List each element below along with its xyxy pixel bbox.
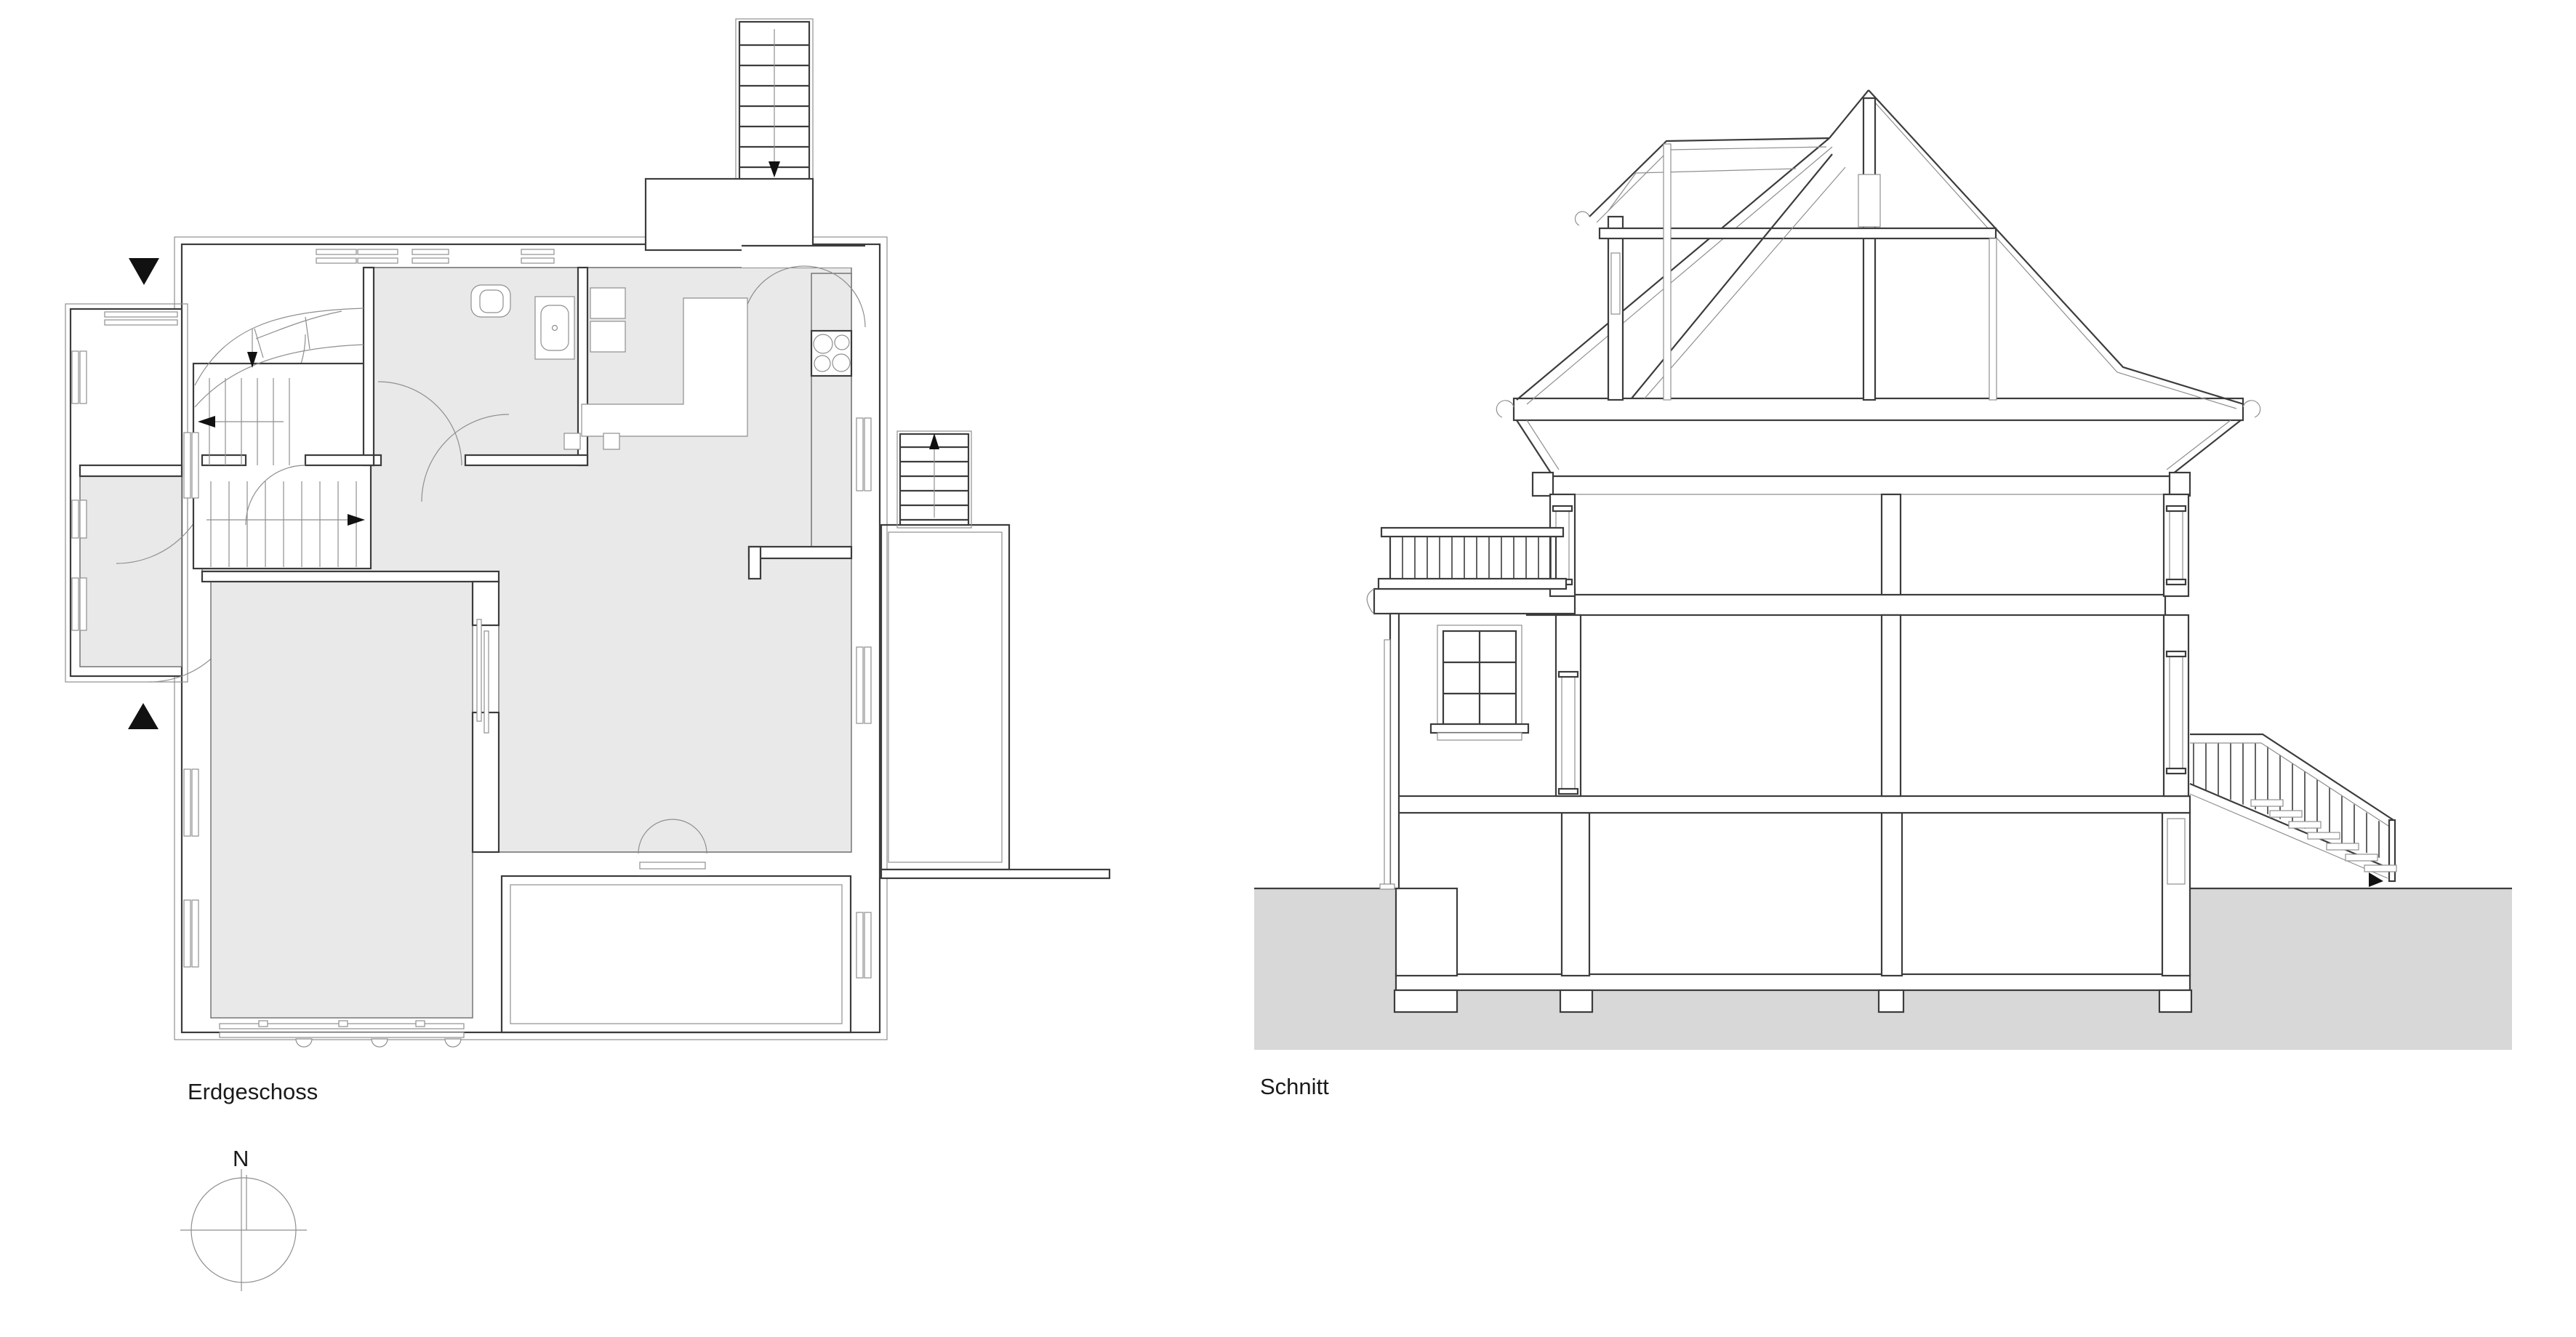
basement-wall — [1882, 813, 1902, 976]
rafter-left-top — [1829, 90, 1869, 138]
basement-wall — [1396, 888, 1457, 976]
gutter-right — [2243, 401, 2260, 417]
kitchen-counter-strip — [811, 273, 851, 547]
right-exterior-stair — [2190, 734, 2396, 887]
wing-wall — [1390, 614, 1399, 888]
top-exterior-stair — [646, 19, 813, 250]
roof-edge-left — [1517, 138, 1829, 400]
footing — [1879, 990, 1903, 1012]
downpipe-foot — [1380, 884, 1395, 889]
tread — [2346, 854, 2378, 861]
section-cut-marker-bottom — [128, 703, 159, 729]
king-post — [1863, 98, 1875, 400]
architectural-drawing: Erdgeschoss N — [0, 0, 2576, 1337]
gutter-left — [1496, 401, 1514, 417]
upper-floor-walls — [1550, 494, 2188, 596]
sink-basin — [541, 305, 569, 350]
dormer-gutter — [1575, 212, 1589, 225]
stove — [811, 331, 851, 376]
strut — [1645, 167, 1845, 398]
tread — [2308, 832, 2340, 839]
wing-cornice — [1367, 589, 1575, 614]
footing — [2159, 990, 2191, 1012]
floor-plan-label: Erdgeschoss — [188, 1079, 318, 1104]
section-label: Schnitt — [1260, 1074, 1329, 1099]
stair-landing — [646, 179, 813, 250]
sliding-door — [477, 619, 481, 721]
oven-tower — [590, 288, 625, 318]
footing — [1395, 990, 1457, 1012]
facade-window — [1431, 625, 1528, 740]
floor-plan: Erdgeschoss N — [65, 19, 1110, 1291]
toilet-bowl — [480, 290, 503, 313]
tread — [2289, 822, 2321, 828]
bay-window — [220, 1021, 464, 1047]
rafter-right — [1869, 90, 2244, 404]
stair-arrow — [2369, 872, 2383, 887]
downpipe — [1384, 640, 1390, 887]
window-sill — [1431, 724, 1528, 733]
attic-window — [1611, 253, 1620, 314]
porch-room — [80, 476, 182, 667]
post — [1989, 238, 1997, 400]
basement-floor-slab — [1396, 974, 2190, 990]
basement-wall — [1562, 813, 1589, 976]
strut — [1632, 154, 1832, 398]
king-post-joint — [1858, 174, 1880, 227]
tread — [2251, 800, 2283, 806]
roof-truss — [1517, 90, 2244, 409]
ground-floor-walls — [1556, 615, 2188, 796]
sliding-door — [484, 631, 489, 733]
east-terrace — [881, 525, 1110, 878]
balcony — [1379, 528, 1566, 589]
east-exterior-stair — [897, 431, 971, 528]
attic-floor — [1496, 398, 2260, 496]
center-wall — [1882, 494, 1901, 595]
center-wall — [1882, 615, 1901, 796]
footing — [1560, 990, 1592, 1012]
collar-beam — [1600, 228, 1996, 238]
ground-floor-slab — [1387, 796, 2190, 813]
section-cut-marker-top — [129, 258, 159, 285]
balcony-deck — [1379, 579, 1566, 589]
compass-north-label: N — [233, 1146, 249, 1171]
upper-floor-slab — [1527, 595, 2165, 615]
basement-interior — [1396, 813, 2190, 990]
room-southwest — [211, 582, 473, 1018]
basement-window — [2167, 819, 2185, 884]
tread — [2270, 811, 2302, 817]
tread — [2327, 843, 2359, 850]
post — [1664, 144, 1671, 400]
north-compass: N — [180, 1146, 307, 1291]
oven-tower — [590, 321, 625, 352]
drawing-sheet: Erdgeschoss N — [0, 0, 2576, 1337]
tread — [2364, 865, 2396, 872]
terrace-step-edge — [881, 870, 1110, 878]
balcony-rail — [1381, 528, 1563, 537]
section: Schnitt — [1254, 90, 2512, 1099]
